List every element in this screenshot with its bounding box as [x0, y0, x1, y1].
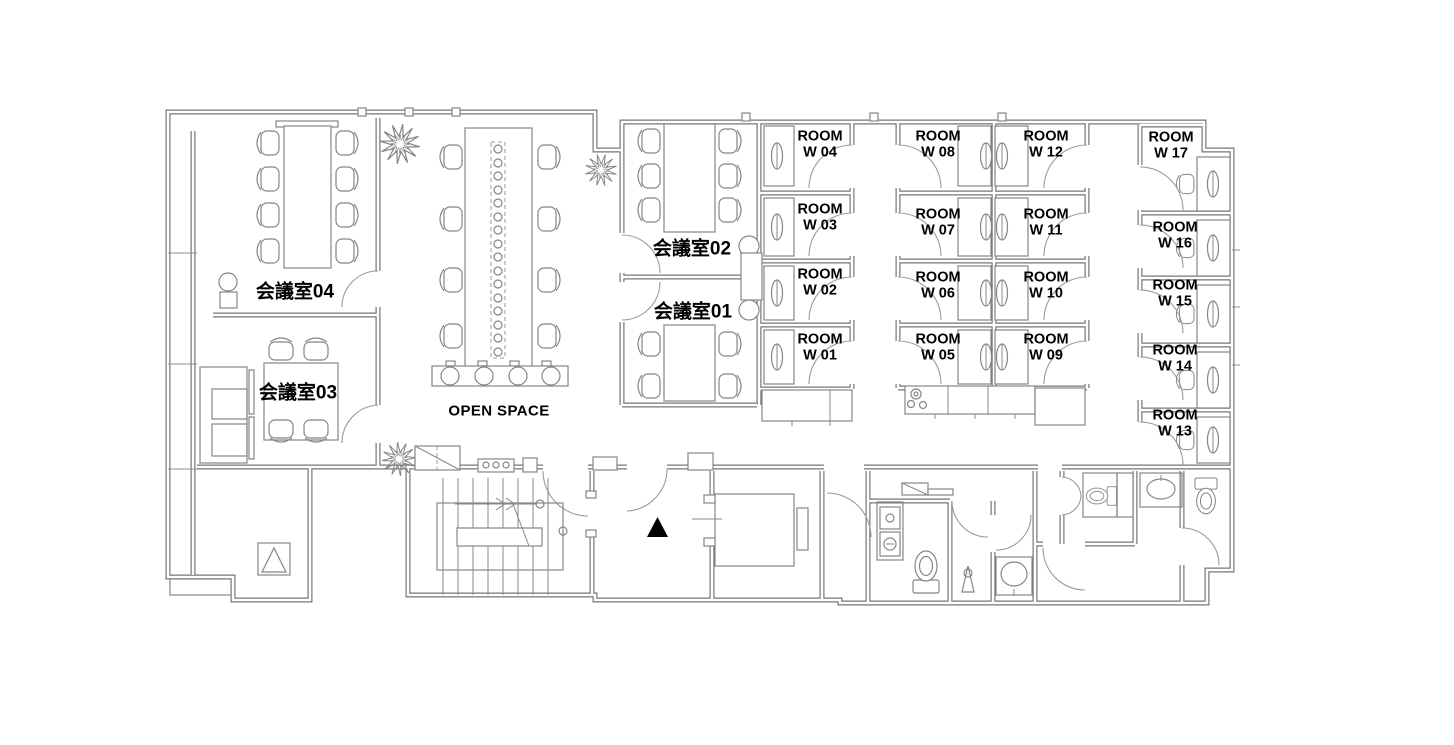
chair	[638, 332, 660, 356]
chair	[538, 268, 560, 292]
sink-icon	[1140, 473, 1182, 507]
door-arc	[627, 469, 667, 511]
chair	[257, 131, 279, 155]
stool	[739, 300, 759, 320]
chair	[638, 129, 660, 153]
chair	[638, 164, 660, 188]
stair-landing	[457, 528, 542, 546]
restrooms	[877, 473, 1217, 596]
slop-sink	[877, 502, 903, 560]
screen	[249, 417, 254, 459]
cabinet	[741, 253, 762, 300]
door-arc	[1182, 528, 1219, 565]
equipment-box	[688, 453, 713, 470]
door-arc	[622, 282, 660, 320]
step-block	[170, 579, 231, 595]
door-arc	[1043, 548, 1085, 590]
womens-toilet	[1083, 473, 1133, 517]
counter	[1035, 388, 1085, 425]
desk-chair-icon	[981, 143, 992, 169]
door-arc	[827, 493, 871, 537]
desk-chair-icon	[1208, 427, 1219, 453]
desk-chair-icon	[997, 280, 1008, 306]
door-arc	[898, 341, 941, 384]
desk-chair-icon	[981, 214, 992, 240]
meeting-table	[664, 325, 715, 401]
kitchen-counter	[905, 386, 1035, 419]
desk-chair-icon	[997, 344, 1008, 370]
toilet-icon	[1086, 487, 1116, 506]
chair	[304, 338, 328, 360]
meeting-room-04-furniture	[219, 121, 358, 308]
door-arc	[898, 213, 941, 256]
door-arc	[1044, 341, 1087, 384]
elevator-counterweight	[797, 508, 808, 550]
door-arc	[1044, 277, 1087, 320]
chair	[269, 338, 293, 360]
chair	[719, 198, 741, 222]
chair	[538, 324, 560, 348]
chair	[336, 239, 358, 263]
desk-chair-icon	[997, 143, 1008, 169]
door-arc	[1044, 213, 1087, 256]
desk-chair-icon	[1208, 367, 1219, 393]
meeting-table	[284, 126, 331, 268]
floor-plan: 会議室04 会議室03 会議室02 会議室01 OPEN SPACE ROOM …	[0, 0, 1454, 745]
plant-icon	[377, 121, 422, 166]
desk-chair-icon	[981, 280, 992, 306]
desk-chair-icon	[1208, 171, 1219, 197]
door-arc	[1044, 145, 1087, 188]
door-arc	[342, 405, 378, 443]
chair	[638, 374, 660, 398]
door-arc	[543, 471, 588, 516]
chair	[336, 203, 358, 227]
chair	[336, 167, 358, 191]
counters	[762, 386, 1085, 426]
desk-chair-icon	[772, 143, 783, 169]
chair	[719, 164, 741, 188]
coat-stand-icon	[219, 273, 237, 291]
stairs	[437, 478, 596, 595]
equipment-box	[523, 458, 537, 472]
toilet-icon	[1195, 478, 1217, 514]
chair	[719, 332, 741, 356]
door-arc	[809, 213, 852, 256]
door-arc	[996, 515, 1031, 550]
chair	[257, 239, 279, 263]
plant-icon	[582, 151, 621, 190]
counter	[762, 390, 852, 421]
open-space-furniture	[376, 121, 620, 481]
desk-chair-icon	[997, 214, 1008, 240]
chair	[638, 198, 660, 222]
chair	[257, 167, 279, 191]
sink-icon	[996, 557, 1032, 596]
door-arc	[622, 235, 660, 273]
chair	[440, 207, 462, 231]
desk-chair-icon	[1208, 235, 1219, 261]
door-arc	[1140, 167, 1183, 210]
desk-chair-icon	[772, 344, 783, 370]
chair	[336, 131, 358, 155]
chair	[538, 207, 560, 231]
equipment-box	[593, 457, 617, 470]
door-arc	[898, 145, 941, 188]
door-arc	[809, 277, 852, 320]
double-door-arc	[1062, 496, 1081, 515]
chair	[440, 268, 462, 292]
chair	[538, 145, 560, 169]
shaft-triangle-icon	[262, 548, 286, 572]
chair	[719, 129, 741, 153]
door-arc	[809, 341, 852, 384]
floor-plan-drawing	[0, 0, 1454, 745]
cabinet	[200, 367, 247, 463]
urinal-icon	[962, 566, 974, 592]
screen	[249, 370, 254, 414]
meeting-room-01-furniture	[638, 325, 741, 401]
elevator	[647, 494, 808, 566]
door-arc	[898, 277, 941, 320]
chair	[1176, 238, 1194, 257]
chair	[719, 374, 741, 398]
meeting-room-03-furniture	[200, 338, 338, 463]
meeting-room-02-furniture	[638, 124, 762, 320]
toilet-icon	[913, 551, 939, 593]
desk-chair-icon	[772, 280, 783, 306]
desk-chair-icon	[1208, 301, 1219, 327]
chair	[440, 324, 462, 348]
desk-chair-icon	[981, 344, 992, 370]
double-door-arc	[1062, 477, 1081, 496]
meeting-table	[664, 124, 715, 232]
entrance-triangle-marker	[647, 517, 668, 537]
pipe-shaft	[170, 543, 290, 595]
door-arc	[342, 271, 378, 307]
chair	[257, 203, 279, 227]
elevator-car	[715, 494, 794, 566]
desk-chair-icon	[772, 214, 783, 240]
chair	[440, 145, 462, 169]
door-arc	[809, 145, 852, 188]
chair	[1176, 370, 1194, 389]
door-arc	[952, 501, 988, 537]
